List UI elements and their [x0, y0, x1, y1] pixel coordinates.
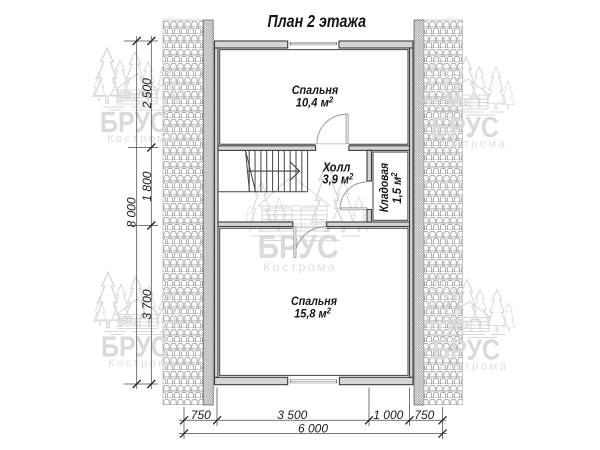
svg-text:750: 750 — [414, 408, 434, 422]
svg-text:Кострома: Кострома — [263, 260, 337, 274]
svg-text:8 000: 8 000 — [124, 197, 138, 227]
svg-text:10,4 м2: 10,4 м2 — [296, 94, 334, 109]
svg-text:1,5 м2: 1,5 м2 — [389, 172, 404, 203]
svg-text:750: 750 — [191, 408, 211, 422]
svg-text:15,8 м2: 15,8 м2 — [294, 306, 331, 321]
svg-text:3,9 м2: 3,9 м2 — [323, 171, 354, 186]
svg-text:1 000: 1 000 — [373, 408, 403, 422]
svg-text:1 800: 1 800 — [140, 171, 154, 201]
svg-text:6 000: 6 000 — [298, 421, 328, 435]
svg-text:План 2 этажа: План 2 этажа — [268, 11, 367, 31]
svg-text:Кладовая: Кладовая — [377, 162, 391, 212]
svg-text:3 500: 3 500 — [277, 408, 307, 422]
svg-text:2 500: 2 500 — [140, 78, 154, 109]
svg-text:3 700: 3 700 — [140, 289, 154, 319]
